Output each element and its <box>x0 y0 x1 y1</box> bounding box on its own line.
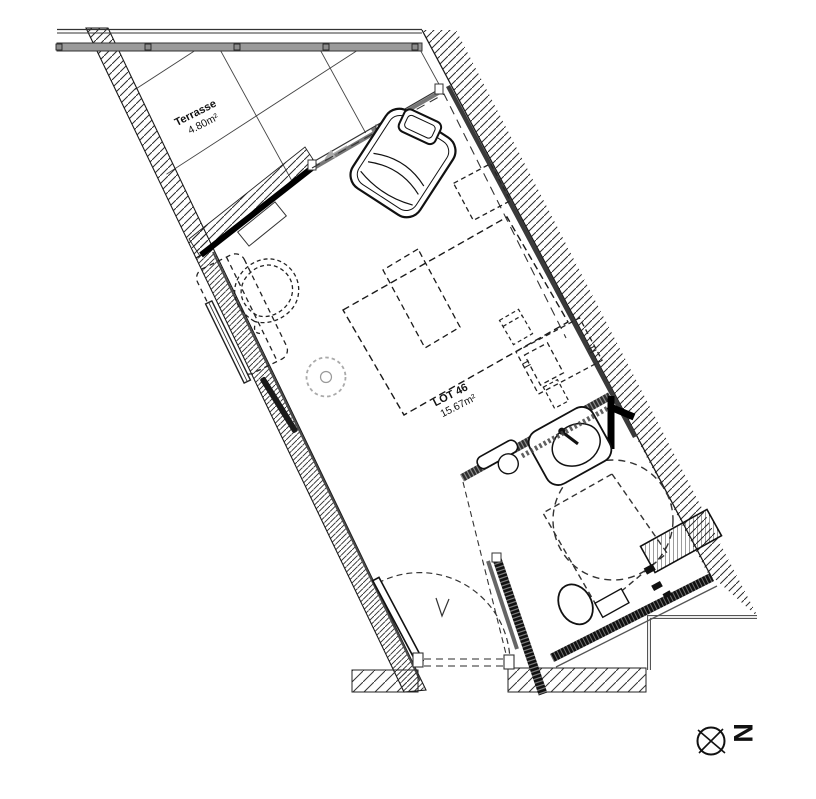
wall-fittings <box>651 581 672 599</box>
round-table-dashed <box>307 358 346 397</box>
nightstand-dashed <box>499 309 532 344</box>
kitchenette-lower-dashed <box>543 380 568 409</box>
right-wall-inner-face <box>448 86 635 437</box>
lot-label-group: LOT 46 15.67m² <box>431 380 478 421</box>
bottom-wall-right-block <box>508 668 646 692</box>
toilet <box>551 578 599 630</box>
bottom-wall <box>352 668 646 692</box>
north-compass: N <box>698 723 759 754</box>
left-wall-upper <box>86 28 213 258</box>
door-post-right <box>504 655 514 669</box>
compass-cross-b <box>699 729 723 753</box>
washbasin <box>524 402 616 489</box>
terrace-label-group: Terrasse 4.80m² <box>173 98 225 141</box>
bottom-wall-left-block <box>352 670 418 692</box>
facade-inner-face <box>201 164 317 255</box>
bedside-desk-dashed <box>383 249 460 348</box>
armchair-solid <box>344 96 466 224</box>
door-swing-arrow <box>436 598 449 616</box>
left-wall-lower <box>196 248 426 692</box>
door-post-left <box>413 653 423 667</box>
floor-plan-page: Terrasse 4.80m² LOT 46 15.67m² N <box>0 0 816 799</box>
toilet-cistern <box>595 589 629 618</box>
north-letter: N <box>728 723 758 743</box>
corridor-step-outline <box>649 617 757 670</box>
floor-plan-drawing: Terrasse 4.80m² LOT 46 15.67m² N <box>0 0 816 799</box>
